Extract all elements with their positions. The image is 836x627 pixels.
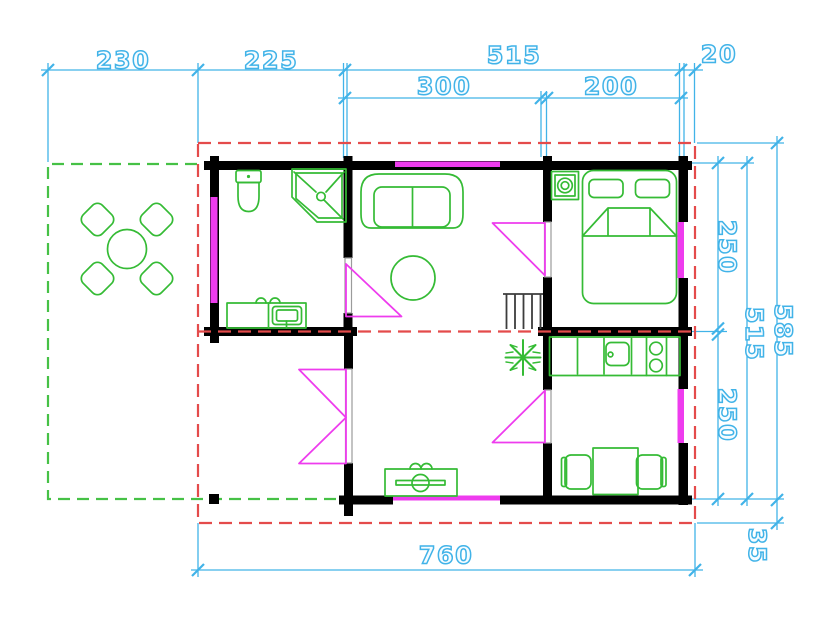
dim-label-bedroom-depth: 250 xyxy=(713,220,741,275)
sofa xyxy=(361,174,463,228)
wall-porch-upper xyxy=(344,331,353,369)
terrace-chair xyxy=(137,259,175,297)
porch-double-door-leaf-top xyxy=(299,370,346,418)
door-jambs xyxy=(345,222,551,463)
bedroom-door-swing xyxy=(493,223,546,276)
wall-kitchen-left-lower xyxy=(543,443,552,504)
kitchen-counter xyxy=(550,337,681,376)
terrace-dining-set xyxy=(78,200,175,297)
dim-label-bedroom-width: 200 xyxy=(584,72,639,100)
grill xyxy=(385,464,457,497)
toilet xyxy=(236,171,261,212)
dim-label-right-overhang: 20 xyxy=(701,40,737,68)
door-swings xyxy=(299,223,545,464)
kitchen-door-swing xyxy=(493,391,546,443)
kitchen-sink xyxy=(606,343,629,366)
kitchen-window xyxy=(678,389,685,443)
faucet xyxy=(608,352,613,357)
dim-label-living-width: 300 xyxy=(417,72,472,100)
walls xyxy=(204,156,692,516)
dining-table-set xyxy=(562,448,667,495)
plant xyxy=(506,340,541,375)
wood-stove xyxy=(552,172,579,200)
dining-chair-back xyxy=(562,458,567,487)
wall-right-top xyxy=(679,156,689,222)
terrace-chair xyxy=(137,200,175,238)
dim-label-living-bedroom-width: 515 xyxy=(487,41,542,69)
coffee-table xyxy=(391,256,435,300)
hob-burner xyxy=(650,359,663,372)
dim-label-kitchen-depth: 250 xyxy=(713,388,741,443)
dim-label-interior-depth: 515 xyxy=(740,307,768,362)
pillow xyxy=(589,180,623,198)
floor-plan-canvas: 230 225 515 20 300 200 760 250 250 515 5… xyxy=(0,0,836,627)
bathroom-vanity xyxy=(227,298,306,328)
wall-porch-lower xyxy=(344,463,353,516)
hob-burner xyxy=(650,342,663,355)
wall-living-bedroom-lower xyxy=(543,277,552,390)
corner-shower xyxy=(292,169,346,222)
porch-post xyxy=(209,494,219,504)
living-room-window xyxy=(395,162,500,168)
dining-table xyxy=(593,448,638,495)
dim-label-eaves-overhang: 35 xyxy=(743,528,771,564)
terrace-chair xyxy=(78,200,116,238)
terrace-chair xyxy=(78,259,116,297)
bathroom-door-swing xyxy=(346,264,402,317)
dim-label-bathroom-width: 225 xyxy=(244,46,299,74)
wall-bottom-right xyxy=(500,496,692,505)
dining-chair xyxy=(637,455,663,489)
dim-label-roof-depth: 585 xyxy=(769,304,797,359)
porch-double-door-leaf-bottom xyxy=(299,418,346,464)
dim-label-terrace-width: 230 xyxy=(96,46,151,74)
bathroom-window xyxy=(211,197,218,303)
dining-chair xyxy=(565,455,591,489)
dim-label-total-width: 760 xyxy=(419,541,474,569)
wall-bathroom-living-upper xyxy=(344,156,353,258)
dining-chair-back xyxy=(661,458,666,487)
terrace-table xyxy=(108,230,147,269)
bedroom-window xyxy=(678,222,685,278)
pillow xyxy=(636,180,670,198)
stairs xyxy=(503,294,543,329)
double-bed xyxy=(583,171,677,304)
